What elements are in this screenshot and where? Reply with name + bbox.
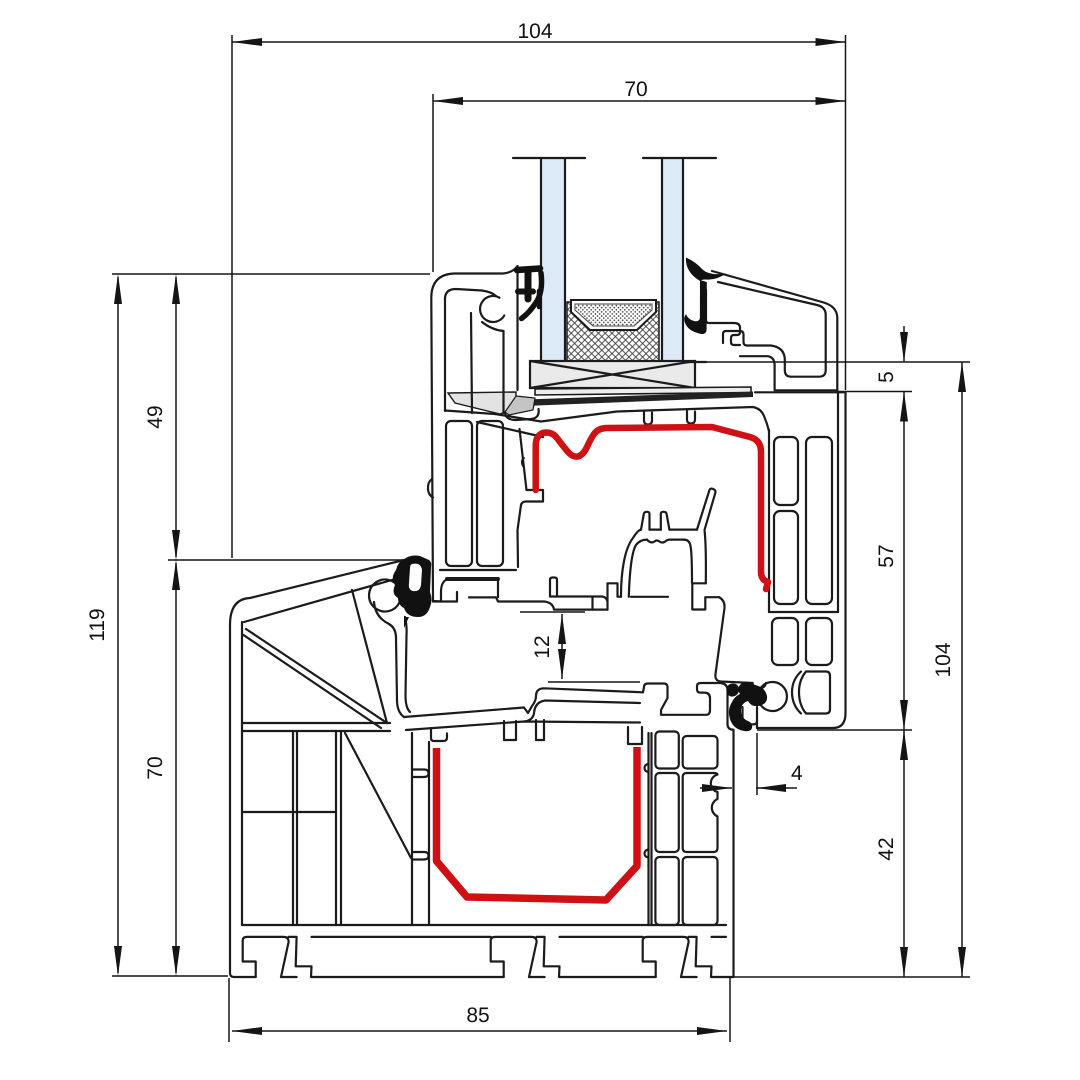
svg-text:104: 104	[517, 20, 552, 43]
svg-text:42: 42	[875, 837, 898, 860]
svg-text:4: 4	[791, 762, 803, 785]
svg-text:104: 104	[932, 642, 955, 677]
svg-text:57: 57	[875, 544, 898, 567]
svg-text:70: 70	[624, 78, 647, 101]
svg-text:70: 70	[144, 756, 167, 779]
svg-text:119: 119	[86, 608, 109, 641]
svg-text:12: 12	[531, 635, 554, 658]
svg-text:85: 85	[466, 1004, 489, 1027]
svg-text:5: 5	[875, 371, 898, 383]
svg-text:49: 49	[144, 405, 167, 428]
